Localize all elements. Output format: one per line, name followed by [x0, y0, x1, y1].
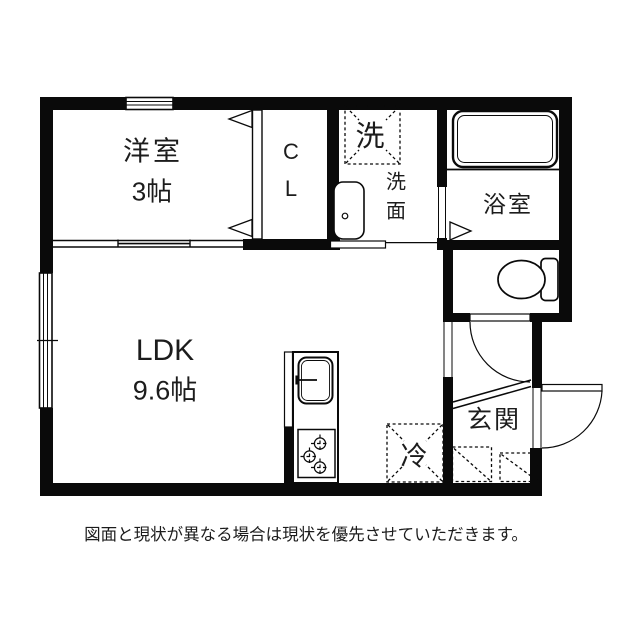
- closet-label-l: L: [285, 176, 297, 202]
- disclaimer-caption: 図面と現状が異なる場合は現状を優先させていただきます。: [0, 521, 612, 545]
- closet-label-c: C: [283, 139, 299, 165]
- entrance-door-icon: [533, 385, 602, 449]
- washroom-door-icon: [331, 241, 444, 248]
- floorplan-canvas: 洋室 3帖 C L 洗 洗面 浴室 LDK 9.6帖 冷 玄関 図面と現状が異な…: [0, 0, 640, 640]
- ldk-label: LDK: [136, 334, 194, 368]
- western-room-label: 洋室: [123, 130, 183, 169]
- western-room-size: 3帖: [132, 172, 172, 209]
- sink-vanity-icon: [334, 182, 364, 239]
- refrigerator-label: 冷: [401, 435, 428, 474]
- washroom-label: 洗面: [380, 171, 409, 229]
- sliding-door-icon: [48, 240, 243, 248]
- bathroom-door-icon: [439, 187, 472, 240]
- bathroom-label: 浴室: [483, 185, 533, 219]
- window-top-icon: [126, 98, 173, 110]
- washing-machine-label: 洗: [355, 113, 384, 155]
- stove-icon: [298, 430, 335, 478]
- entrance-label: 玄関: [467, 400, 521, 436]
- window-left-icon: [37, 273, 58, 408]
- kitchen-sink-icon: [296, 358, 333, 404]
- shoe-cabinet-icon: [453, 447, 539, 482]
- toilet-door-icon: [470, 314, 530, 382]
- bathtub-icon: [447, 111, 559, 170]
- toilet-icon: [498, 259, 558, 301]
- ldk-size: 9.6帖: [133, 369, 198, 408]
- hallway-opening: [444, 320, 452, 377]
- closet-door-icon: [229, 110, 262, 239]
